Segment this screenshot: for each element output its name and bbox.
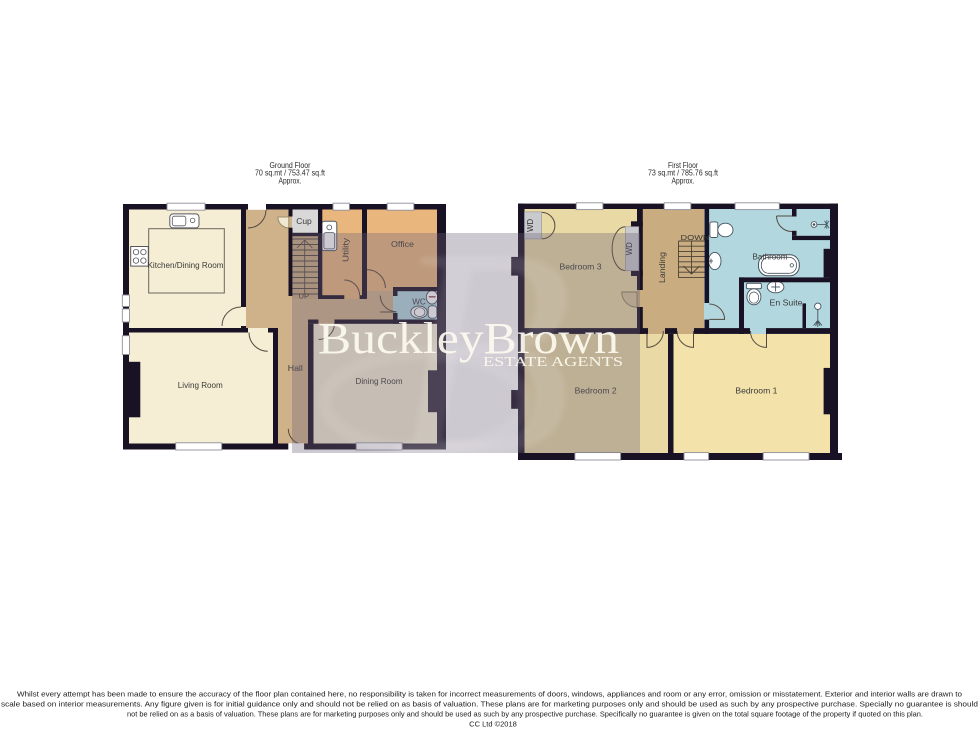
svg-text:scale based on interior measur: scale based on interior measurements. An… (1, 700, 978, 709)
svg-text:CC Ltd ©2018: CC Ltd ©2018 (469, 720, 517, 729)
svg-text:Bedroom 1: Bedroom 1 (735, 386, 777, 395)
svg-text:Whilst every attempt has been: Whilst every attempt has been made to en… (17, 690, 962, 699)
svg-text:DOWN: DOWN (681, 233, 710, 242)
svg-text:Landing: Landing (658, 252, 667, 283)
svg-text:Bathroom: Bathroom (753, 253, 788, 262)
svg-text:ESTATE AGENTS: ESTATE AGENTS (483, 354, 623, 369)
svg-text:Approx.: Approx. (672, 176, 695, 185)
svg-text:Living Room: Living Room (178, 381, 223, 390)
svg-text:Kitchen/Dining Room: Kitchen/Dining Room (148, 261, 224, 270)
svg-text:Cup: Cup (296, 217, 312, 226)
svg-text:En Suite: En Suite (770, 298, 803, 307)
svg-text:not be relied on as a basis of: not be relied on as a basis of valuation… (127, 710, 923, 719)
svg-text:Approx.: Approx. (279, 176, 302, 185)
